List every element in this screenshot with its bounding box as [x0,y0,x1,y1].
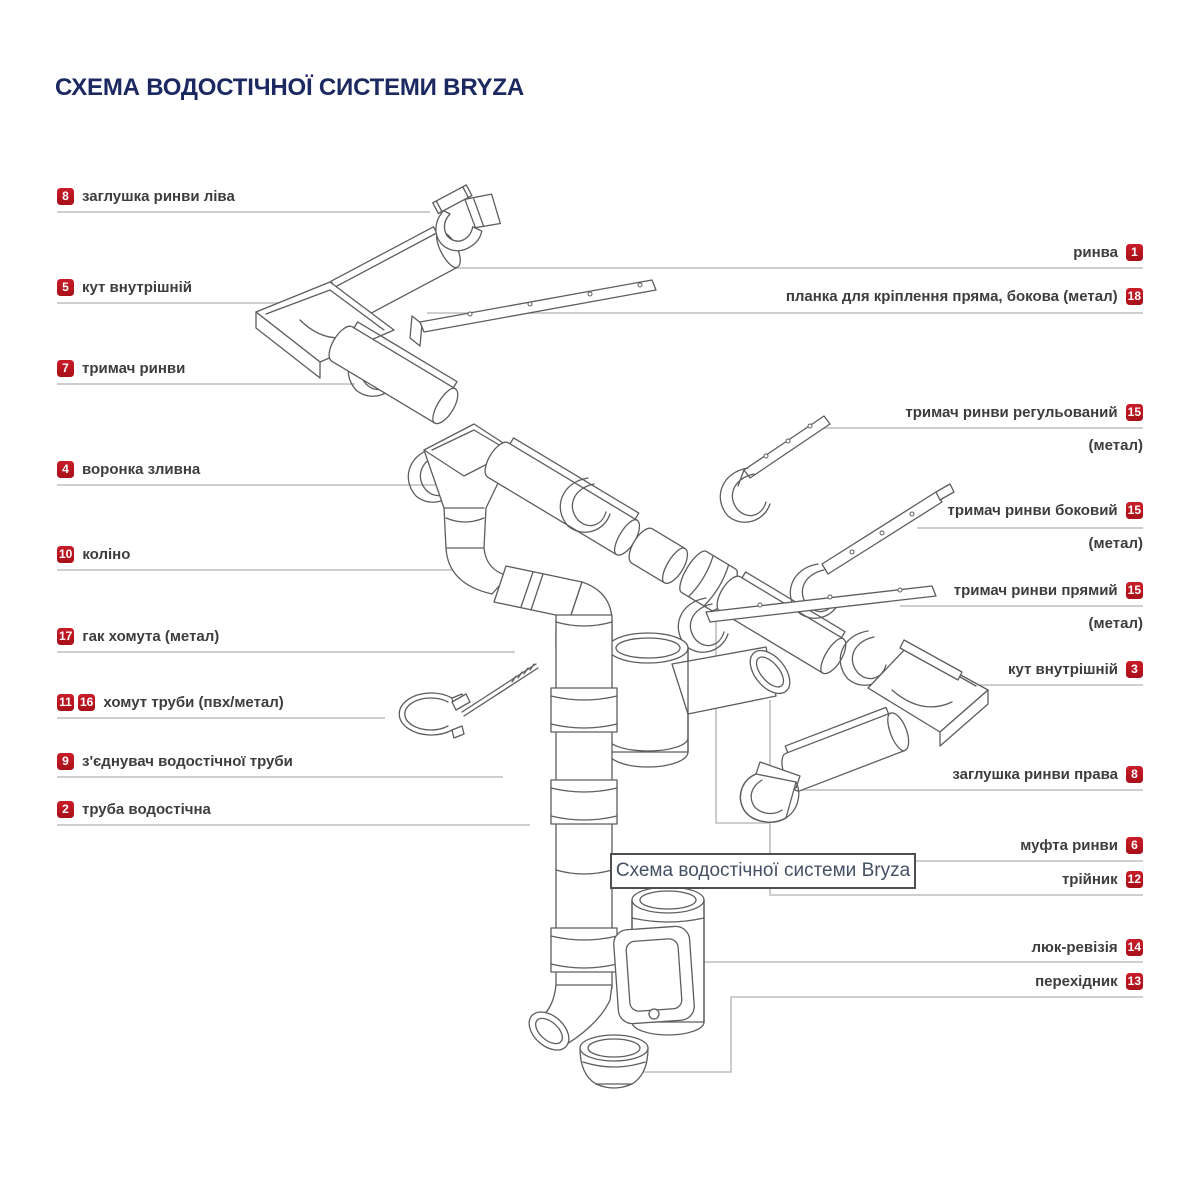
pipe-connector [551,688,617,732]
label-adapter: перехідник 13 [1035,973,1143,990]
gutter-run-1 [324,316,466,427]
part-number-badge: 3 [1126,661,1143,678]
part-label: тримач ринви боковий [948,502,1118,519]
label-gutter: ринва 1 [1073,244,1143,261]
part-label: гак хомута (метал) [82,628,219,645]
part-number-badge: 18 [1126,288,1143,305]
part-label: коліно [82,546,130,563]
part-label: трійник [1062,871,1118,888]
part-number-badge: 13 [1126,973,1143,990]
part-label: муфта ринви [1020,837,1118,854]
part-number-badge: 1 [1126,244,1143,261]
part-number-badge: 8 [57,188,74,205]
label-gutter-holder: 7 тримач ринви [57,360,185,377]
part-number-badge: 15 [1126,502,1143,519]
part-number-badge: 15 [1126,404,1143,421]
diagram-caption-box: Схема водостічної системи Bryza [610,853,916,889]
part-label: з'єднувач водостічної труби [82,753,293,770]
part-label: заглушка ринви права [952,766,1118,783]
pipe-connector [551,928,617,972]
diagram-caption-text: Схема водостічної системи Bryza [616,860,910,882]
part-number-badge: 2 [57,801,74,818]
part-label: перехідник [1035,973,1118,990]
part-label: тримач ринви [82,360,185,377]
part-number-badge: 8 [1126,766,1143,783]
part-number-badge: 12 [1126,871,1143,888]
part-label-material: (метал) [1089,535,1143,552]
part-number-badge: 14 [1126,939,1143,956]
label-downpipe: 2 труба водостічна [57,801,211,818]
label-funnel: 4 воронка зливна [57,461,200,478]
label-corner-inner-left: 5 кут внутрішній [57,279,192,296]
part-number-badge: 9 [57,753,74,770]
part-number-badge: 10 [57,546,74,563]
part-label: планка для кріплення пряма, бокова (мета… [786,288,1118,305]
part-label: люк-ревізія [1032,939,1118,956]
label-fixing-plank: планка для кріплення пряма, бокова (мета… [786,288,1143,305]
part-number-badge: 4 [57,461,74,478]
part-label: заглушка ринви ліва [82,188,235,205]
label-elbow: 10 коліно [57,546,130,563]
part-label: кут внутрішній [1008,661,1118,678]
bryza-gutter-scheme-page: СХЕМА ВОДОСТІЧНОЇ СИСТЕМИ BRYZA 8 заглуш… [0,0,1200,1200]
label-holder-side: тримач ринви боковий 15 [948,502,1143,519]
label-pipe-connector: 9 з'єднувач водостічної труби [57,753,293,770]
label-holder-regulated: тримач ринви регульований 15 [905,404,1143,421]
part-label-material: (метал) [1089,615,1143,632]
part-label: труба водостічна [82,801,211,818]
pipe-connector [551,780,617,824]
gutter-system-diagram [0,0,1200,1200]
holder-regulated [738,416,830,486]
part-label: хомут труби (пвх/метал) [103,694,283,711]
adapter [580,1035,648,1088]
gutter-run-2 [480,432,648,559]
part-label: тримач ринви прямий [954,582,1118,599]
part-label: кут внутрішній [82,279,192,296]
label-end-cap-left: 8 заглушка ринви ліва [57,188,235,205]
part-label: тримач ринви регульований [905,404,1117,421]
part-number-badges: 11 16 [57,694,95,711]
label-tee: трійник 12 [1062,871,1143,888]
part-label: воронка зливна [82,461,200,478]
label-gutter-coupler: муфта ринви 6 [1020,837,1143,854]
pipe-clamp [399,664,538,738]
holder-side [822,484,954,574]
label-corner-inner-right: кут внутрішній 3 [1008,661,1143,678]
page-title: СХЕМА ВОДОСТІЧНОЇ СИСТЕМИ BRYZA [55,74,524,102]
label-pipe-clamp: 11 16 хомут труби (пвх/метал) [57,694,284,711]
part-number-badge: 11 [57,694,74,711]
part-label: ринва [1073,244,1118,261]
part-label-material: (метал) [1089,437,1143,454]
part-number-badge: 15 [1126,582,1143,599]
downpipe [551,615,617,988]
part-number-badge: 17 [57,628,74,645]
label-holder-straight: тримач ринви прямий 15 [954,582,1143,599]
part-number-badge: 7 [57,360,74,377]
part-number-badge: 5 [57,279,74,296]
holder-regulated-hook [720,468,770,522]
part-number-badge: 6 [1126,837,1143,854]
label-inspection-hatch: люк-ревізія 14 [1032,939,1143,956]
inspection-hatch [613,887,704,1035]
clamp-hook-bolt [462,664,538,716]
label-clamp-hook: 17 гак хомута (метал) [57,628,219,645]
label-end-cap-right: заглушка ринви права 8 [952,766,1143,783]
part-number-badge: 16 [78,694,95,711]
